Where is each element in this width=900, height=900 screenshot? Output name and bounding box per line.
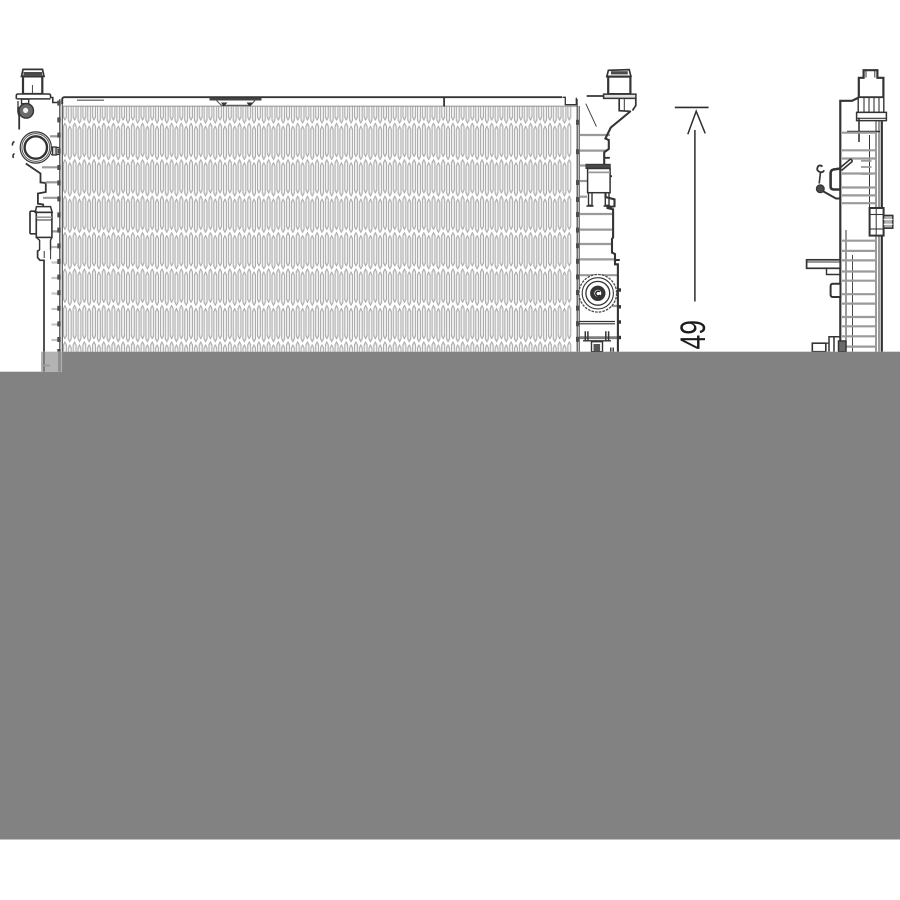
svg-text:49: 49 [673, 320, 713, 349]
